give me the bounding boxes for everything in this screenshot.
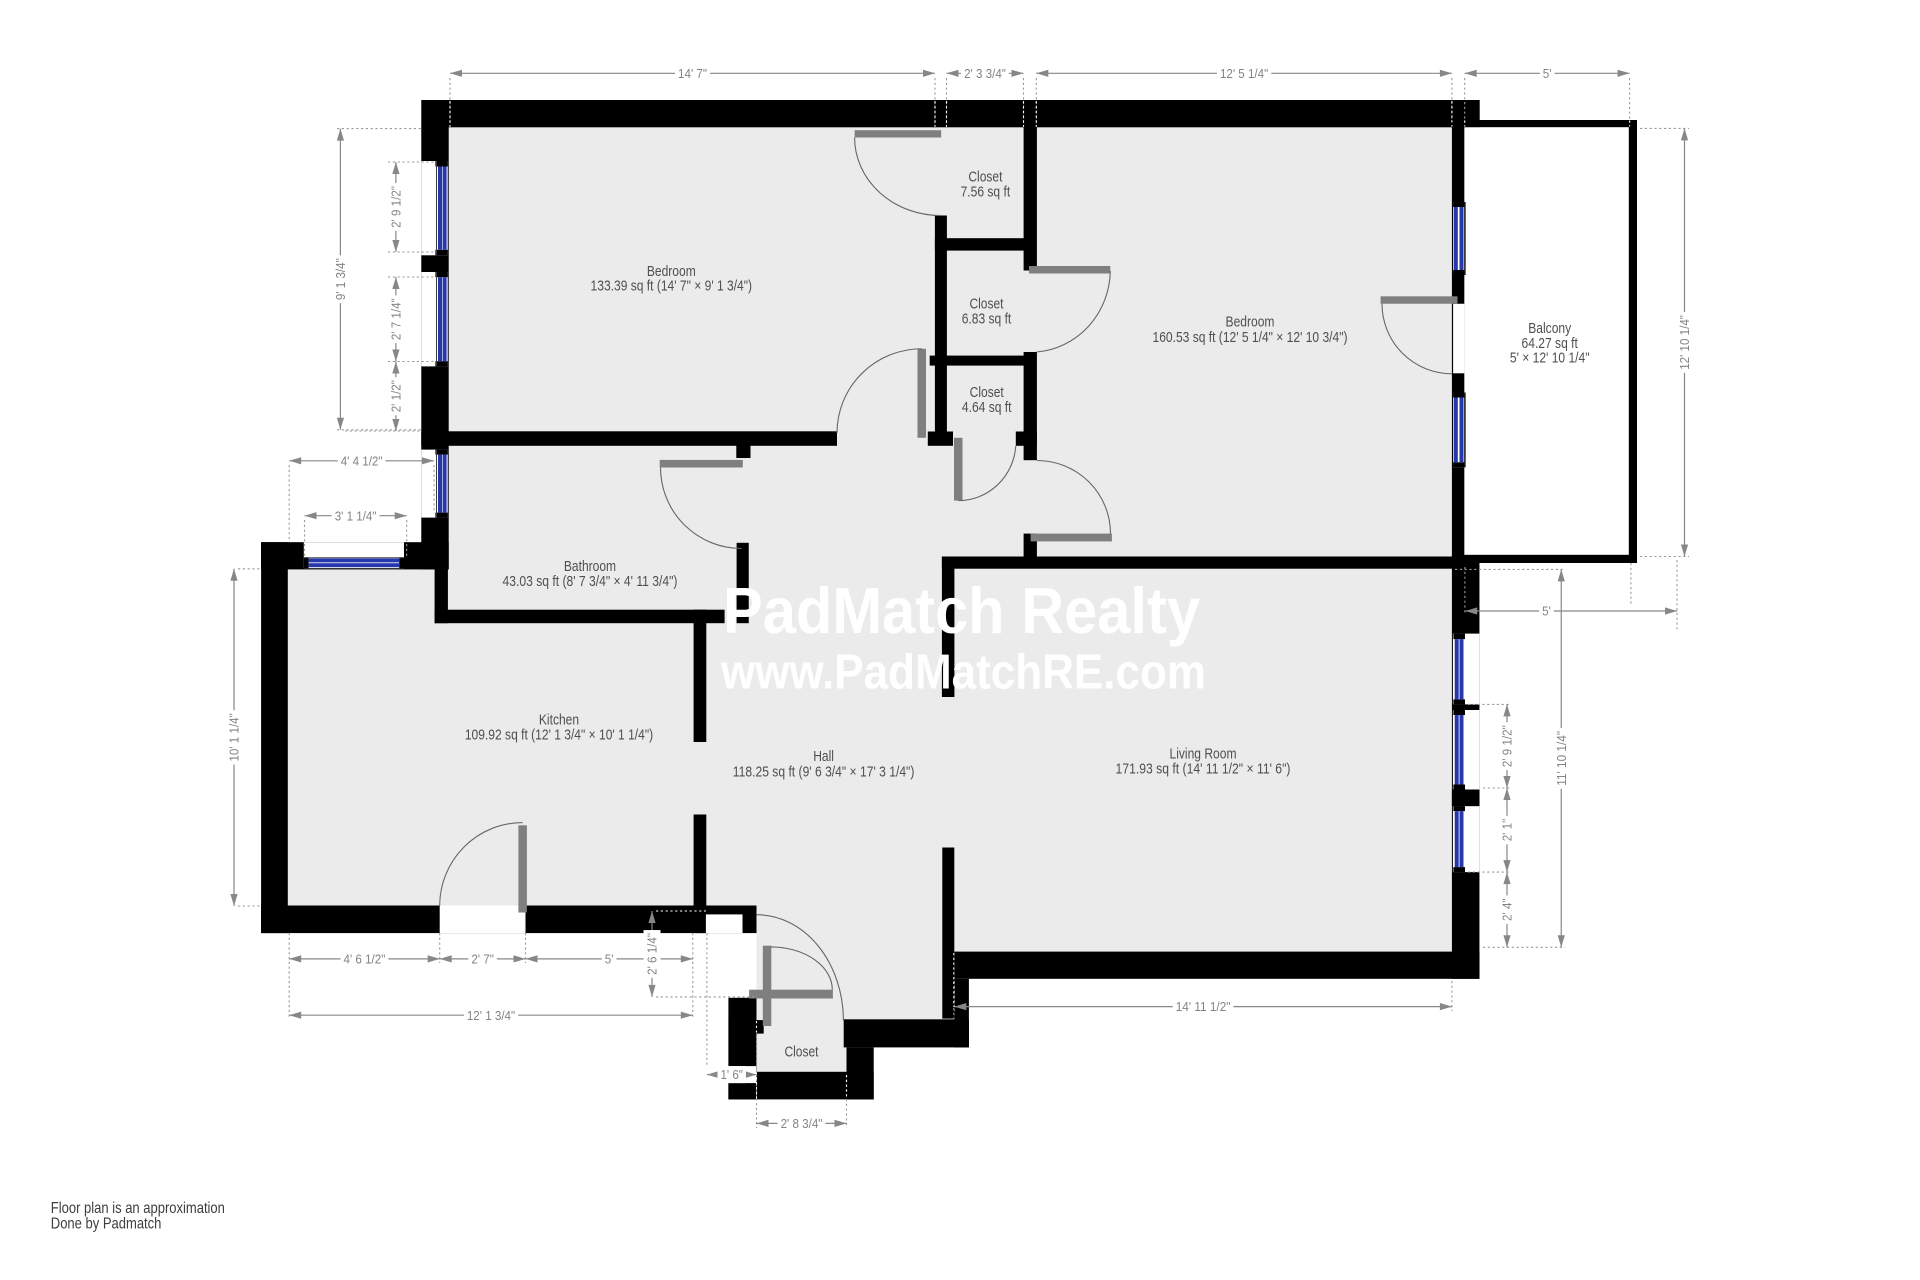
svg-text:9' 1 3/4": 9' 1 3/4" bbox=[333, 258, 348, 300]
svg-text:12' 1 3/4": 12' 1 3/4" bbox=[467, 1008, 516, 1023]
svg-text:6.83 sq ft: 6.83 sq ft bbox=[962, 311, 1012, 328]
svg-text:43.03 sq ft (8' 7 3/4" × 4' 11: 43.03 sq ft (8' 7 3/4" × 4' 11 3/4") bbox=[503, 573, 678, 590]
svg-text:5': 5' bbox=[1543, 66, 1552, 81]
svg-text:2' 9 1/2": 2' 9 1/2" bbox=[389, 186, 404, 228]
svg-text:171.93 sq ft (14' 11 1/2" × 11: 171.93 sq ft (14' 11 1/2" × 11' 6") bbox=[1116, 761, 1291, 778]
svg-text:www.PadMatchRE.com: www.PadMatchRE.com bbox=[720, 645, 1206, 699]
svg-text:PadMatch Realty: PadMatch Realty bbox=[723, 574, 1200, 647]
svg-text:12' 10 1/4": 12' 10 1/4" bbox=[1677, 315, 1692, 370]
svg-text:2' 1/2": 2' 1/2" bbox=[389, 380, 404, 412]
svg-text:133.39 sq ft (14' 7" × 9' 1 3/: 133.39 sq ft (14' 7" × 9' 1 3/4") bbox=[591, 278, 753, 295]
svg-text:2' 1": 2' 1" bbox=[1500, 818, 1515, 841]
svg-text:Closet: Closet bbox=[784, 1044, 819, 1061]
svg-text:14' 7": 14' 7" bbox=[678, 66, 707, 81]
svg-text:2' 3 3/4": 2' 3 3/4" bbox=[964, 66, 1006, 81]
svg-text:Hall: Hall bbox=[813, 748, 834, 765]
svg-text:2' 6 1/4": 2' 6 1/4" bbox=[645, 933, 660, 975]
svg-text:2' 7": 2' 7" bbox=[471, 952, 494, 967]
svg-text:5': 5' bbox=[605, 952, 614, 967]
svg-text:11' 10 1/4": 11' 10 1/4" bbox=[1554, 731, 1569, 786]
svg-text:2' 4": 2' 4" bbox=[1500, 898, 1515, 921]
svg-text:2' 8 3/4": 2' 8 3/4" bbox=[781, 1116, 823, 1131]
svg-text:4.64 sq ft: 4.64 sq ft bbox=[962, 399, 1012, 416]
svg-text:Done by Padmatch: Done by Padmatch bbox=[51, 1216, 162, 1233]
svg-text:4' 6 1/2": 4' 6 1/2" bbox=[344, 952, 386, 967]
svg-text:5' × 12' 10 1/4": 5' × 12' 10 1/4" bbox=[1510, 349, 1590, 366]
svg-text:2' 7 1/4": 2' 7 1/4" bbox=[389, 298, 404, 340]
svg-text:109.92 sq ft (12' 1 3/4" × 10': 109.92 sq ft (12' 1 3/4" × 10' 1 1/4") bbox=[465, 726, 653, 743]
svg-text:2' 9 1/2": 2' 9 1/2" bbox=[1500, 725, 1515, 767]
svg-text:5': 5' bbox=[1542, 604, 1551, 619]
svg-text:4' 4 1/2": 4' 4 1/2" bbox=[341, 453, 383, 468]
svg-text:14' 11 1/2": 14' 11 1/2" bbox=[1176, 999, 1231, 1014]
svg-text:118.25 sq ft (9' 6 3/4" × 17': 118.25 sq ft (9' 6 3/4" × 17' 3 1/4") bbox=[733, 763, 915, 780]
svg-text:7.56 sq ft: 7.56 sq ft bbox=[961, 184, 1011, 201]
svg-text:Floor plan is an approximation: Floor plan is an approximation bbox=[51, 1200, 225, 1217]
svg-text:1' 6": 1' 6" bbox=[720, 1067, 743, 1082]
svg-text:160.53 sq ft (12' 5 1/4" × 12': 160.53 sq ft (12' 5 1/4" × 12' 10 3/4") bbox=[1153, 329, 1348, 346]
svg-text:10' 1 1/4": 10' 1 1/4" bbox=[227, 713, 242, 762]
svg-text:3' 1 1/4": 3' 1 1/4" bbox=[335, 508, 377, 523]
svg-text:12' 5 1/4": 12' 5 1/4" bbox=[1220, 66, 1269, 81]
